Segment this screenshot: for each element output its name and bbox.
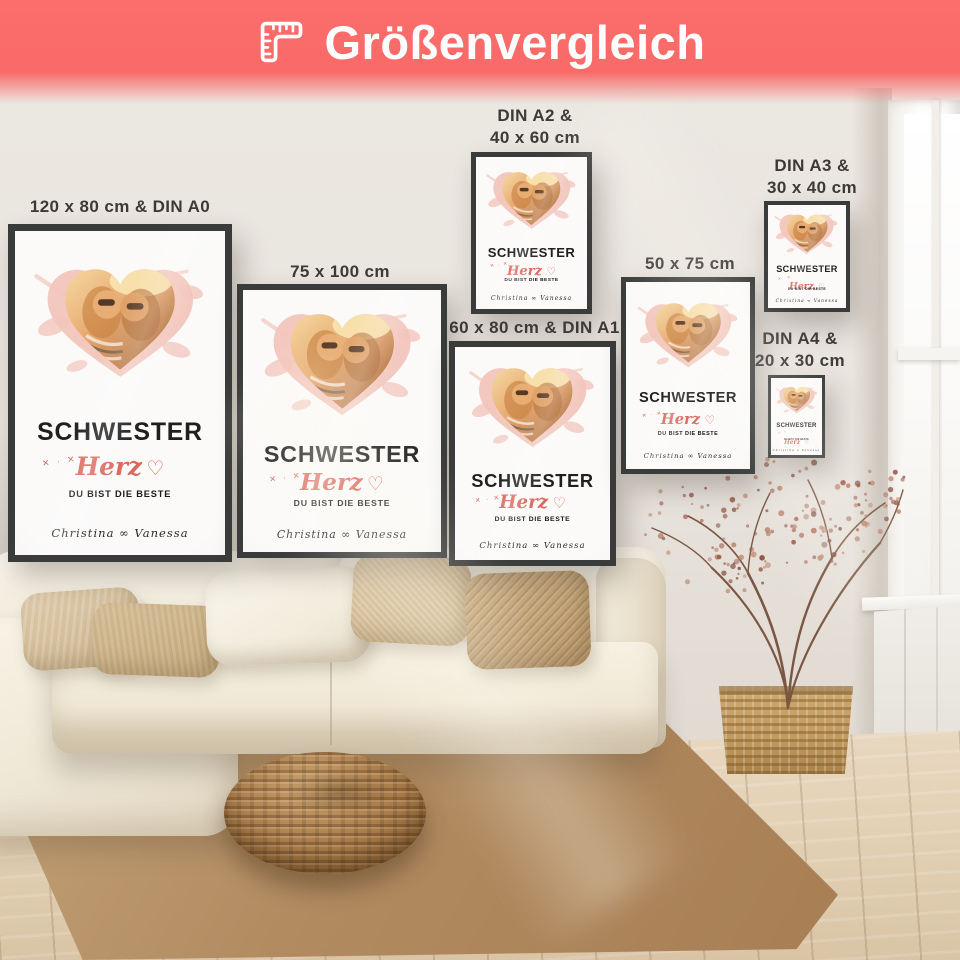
heart-photo (781, 383, 813, 415)
size-label-120x80-din-a0: 120 x 80 cm & DIN A0 (10, 196, 230, 218)
poster-script-word: Herz (499, 492, 548, 513)
heart-photo (484, 361, 580, 450)
poster-artwork: SCHWESTER ✕ · ✕ Herz ♡ DU BIST DIE BESTE… (15, 231, 225, 555)
throw-pillow (204, 565, 371, 667)
window-mullion-vertical (932, 100, 939, 620)
window-mullion-horizontal (898, 348, 960, 360)
sofa-seam (330, 660, 332, 745)
poster-title: SCHWESTER (476, 246, 587, 259)
size-label-60x80-din-a1: 60 x 80 cm & DIN A1 (432, 317, 637, 339)
poster-tagline: DU BIST DIE BESTE (476, 278, 587, 283)
poster-tagline: DU BIST DIE BESTE (626, 431, 750, 437)
poster-names: Christina ∞ Vanessa (626, 452, 750, 460)
poster-names: Christina ∞ Vanessa (476, 295, 587, 302)
size-label-din-a3-30x40: DIN A3 & 30 x 40 cm (732, 155, 892, 200)
poster-artwork: SCHWESTER ✕ · ✕ Herz ♡ DU BIST DIE BESTE… (771, 378, 822, 455)
poster-artwork: SCHWESTER ✕ · ✕ Herz ♡ DU BIST DIE BESTE… (243, 290, 441, 552)
heart-outline-icon: ♡ (553, 495, 566, 512)
throw-pillow (91, 602, 221, 678)
heart-photo (55, 252, 185, 388)
heart-outline-icon: ♡ (547, 266, 556, 278)
poster-title: SCHWESTER (15, 421, 225, 446)
poster-artwork: SCHWESTER ✕ · ✕ Herz ♡ DU BIST DIE BESTE… (476, 157, 587, 309)
poster-title: SCHWESTER (768, 265, 846, 274)
sparkle-decor: ✕ · ✕ (475, 493, 502, 505)
poster-names: Christina ∞ Vanessa (455, 541, 610, 551)
basket-rim (716, 686, 856, 695)
poster-title: SCHWESTER (455, 472, 610, 490)
rattan-pouf (224, 752, 426, 874)
throw-pillow (464, 570, 591, 670)
ruler-square-icon (255, 16, 307, 68)
sparkle-decor: ✕ · ✕ (268, 469, 302, 484)
poster-artwork: SCHWESTER ✕ · ✕ Herz ♡ DU BIST DIE BESTE… (626, 282, 750, 469)
poster-artwork: SCHWESTER ✕ · ✕ Herz ♡ DU BIST DIE BESTE… (455, 347, 610, 560)
heart-photo (650, 294, 727, 373)
poster-script-word: Herz (661, 411, 700, 428)
poster-names: Christina ∞ Vanessa (771, 448, 822, 452)
poster-title: SCHWESTER (243, 443, 441, 466)
heart-outline-icon: ♡ (367, 474, 384, 495)
poster-script-word: Herz (76, 452, 142, 481)
heart-photo (281, 307, 404, 417)
poster-title: SCHWESTER (771, 423, 822, 429)
poster-120x80-din-a0: SCHWESTER ✕ · ✕ Herz ♡ DU BIST DIE BESTE… (8, 224, 232, 562)
poster-script-word: Herz (507, 264, 542, 279)
poster-tagline: DU BIST DIE BESTE (455, 516, 610, 523)
poster-title: SCHWESTER (626, 391, 750, 406)
poster-din-a2-40x60: SCHWESTER ✕ · ✕ Herz ♡ DU BIST DIE BESTE… (471, 152, 592, 314)
poster-artwork: SCHWESTER ✕ · ✕ Herz ♡ DU BIST DIE BESTE… (768, 205, 846, 308)
poster-names: Christina ∞ Vanessa (243, 528, 441, 541)
heart-photo (783, 212, 831, 255)
poster-names: Christina ∞ Vanessa (15, 526, 225, 540)
size-label-din-a4-20x30: DIN A4 & 20 x 30 cm (720, 328, 880, 373)
size-label-50x75: 50 x 75 cm (610, 253, 770, 275)
poster-tagline: DU BIST DIE BESTE (771, 439, 822, 441)
poster-60x80-din-a1: SCHWESTER ✕ · ✕ Herz ♡ DU BIST DIE BESTE… (449, 341, 616, 566)
throw-pillow (350, 553, 472, 647)
header-content: Größenvergleich (0, 10, 960, 74)
heart-photo (497, 167, 566, 231)
page-title: Größenvergleich (325, 15, 706, 70)
sparkle-decor: ✕ · ✕ (42, 453, 78, 469)
woven-basket (716, 686, 856, 774)
poster-names: Christina ∞ Vanessa (768, 299, 846, 304)
poster-75x100: SCHWESTER ✕ · ✕ Herz ♡ DU BIST DIE BESTE… (237, 284, 447, 558)
heart-outline-icon: ♡ (705, 413, 716, 427)
pouf-top-dent (284, 770, 394, 814)
header-banner: Größenvergleich (0, 0, 960, 104)
poster-din-a3-30x40: SCHWESTER ✕ · ✕ Herz ♡ DU BIST DIE BESTE… (764, 201, 850, 312)
poster-tagline: DU BIST DIE BESTE (15, 489, 225, 499)
sparkle-decor: ✕ · ✕ (777, 431, 786, 435)
size-label-75x100: 75 x 100 cm (250, 261, 430, 283)
heart-outline-icon: ♡ (805, 441, 809, 446)
heart-outline-icon: ♡ (146, 456, 164, 480)
size-label-din-a2-40x60: DIN A2 & 40 x 60 cm (455, 105, 615, 150)
poster-tagline: DU BIST DIE BESTE (243, 498, 441, 508)
size-comparison-scene: Größenvergleich 120 x 80 cm & DIN A0 75 … (0, 0, 960, 960)
poster-tagline: DU BIST DIE BESTE (768, 287, 846, 291)
poster-script-word: Herz (300, 468, 363, 496)
window (888, 100, 960, 620)
poster-din-a4-20x30: SCHWESTER ✕ · ✕ Herz ♡ DU BIST DIE BESTE… (768, 375, 825, 458)
poster-50x75: SCHWESTER ✕ · ✕ Herz ♡ DU BIST DIE BESTE… (621, 277, 755, 474)
